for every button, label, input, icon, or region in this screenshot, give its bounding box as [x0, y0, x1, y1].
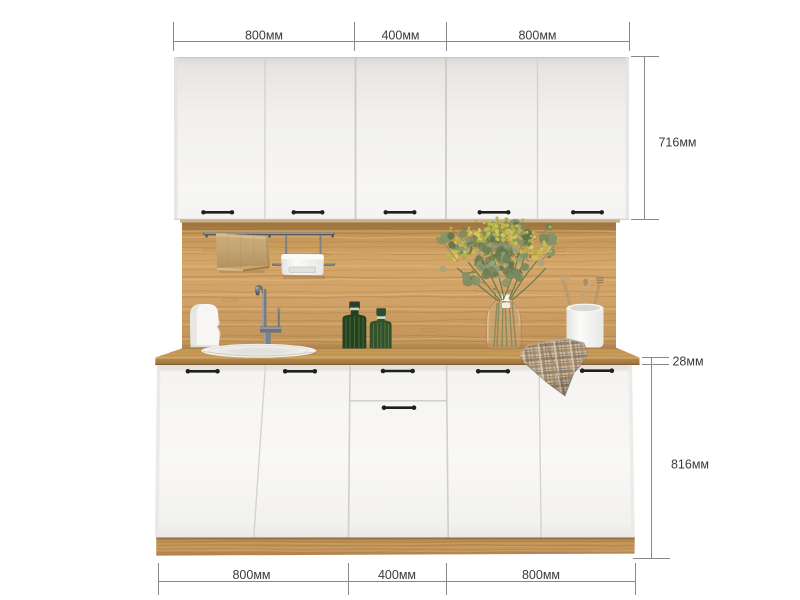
svg-text:800мм: 800мм — [245, 29, 283, 43]
svg-text:816мм: 816мм — [671, 458, 709, 472]
svg-text:400мм: 400мм — [378, 568, 416, 582]
svg-text:28мм: 28мм — [672, 354, 703, 368]
svg-text:800мм: 800мм — [518, 29, 556, 43]
svg-text:800мм: 800мм — [522, 568, 560, 582]
svg-text:800мм: 800мм — [232, 568, 270, 582]
svg-text:400мм: 400мм — [381, 29, 419, 43]
svg-text:716мм: 716мм — [658, 136, 696, 150]
